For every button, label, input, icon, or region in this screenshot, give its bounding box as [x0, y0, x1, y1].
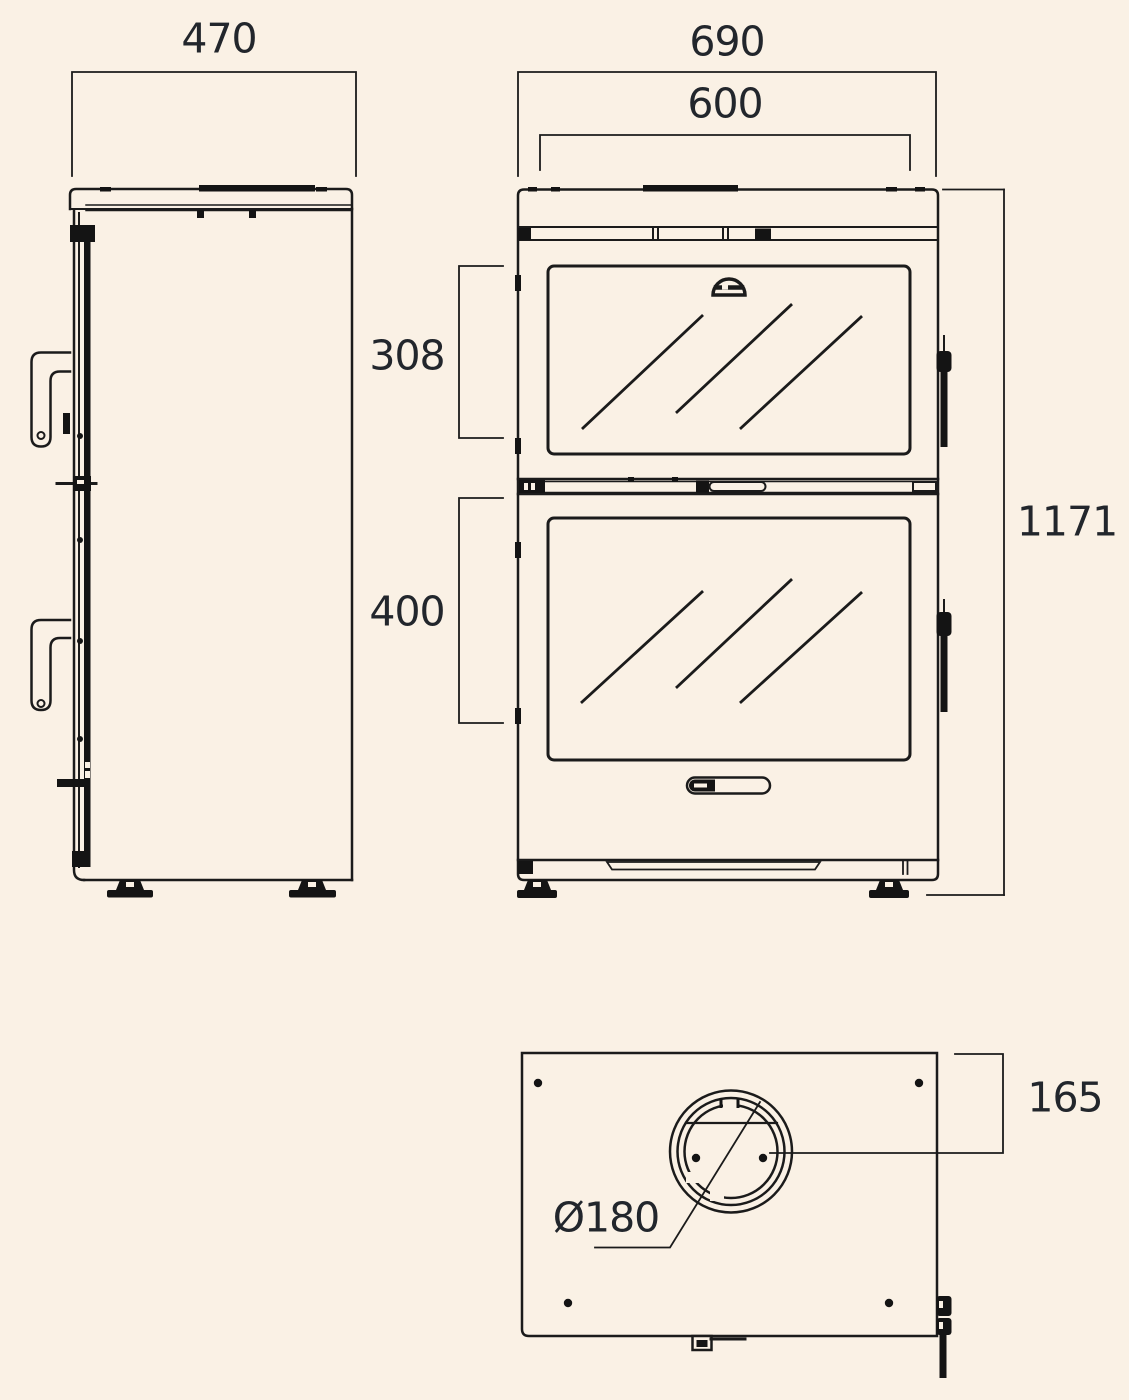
flue-bolt-dot — [759, 1154, 767, 1162]
adjustable-feet-front — [517, 880, 909, 898]
screw-dot — [534, 1079, 542, 1087]
top-view-latch — [693, 1336, 746, 1350]
hinge-pin — [77, 736, 83, 742]
dim-label-upper-glass-height: 308 — [369, 336, 444, 377]
dim-470-bracket — [72, 72, 356, 176]
dim-label-overall-width: 690 — [689, 22, 764, 63]
dim-label-flue-offset: 165 — [1027, 1078, 1102, 1119]
hinge-pin — [77, 433, 83, 439]
dim-600-bracket — [540, 135, 910, 170]
side-view-drawing — [32, 72, 357, 898]
top-hinge-block — [70, 225, 95, 242]
front-pull-handle — [687, 778, 770, 794]
flue-bolt-dot — [692, 1154, 700, 1162]
hinge-pin — [77, 638, 83, 644]
screw-dot — [885, 1299, 893, 1307]
dim-label-overall-height: 1171 — [1017, 502, 1117, 543]
dim-165-leader — [770, 1054, 1003, 1153]
hinge-pin — [77, 537, 83, 543]
screw-dot — [915, 1079, 923, 1087]
adjustable-feet-side — [107, 880, 336, 898]
stove-dimension-drawing — [0, 0, 1129, 1400]
lower-door-handle-profile — [32, 620, 71, 710]
glass-reflection-lines-upper — [583, 305, 861, 428]
thermometer-icon — [713, 279, 745, 295]
screw-dot — [564, 1299, 572, 1307]
drawing-canvas: 470 690 600 308 400 1171 165 Ø180 — [0, 0, 1129, 1400]
dim-label-flue-diameter: Ø180 — [553, 1198, 660, 1239]
flue-collar — [670, 1091, 792, 1213]
dim-400-bracket — [459, 498, 503, 723]
dim-308-bracket — [459, 266, 503, 438]
base-vent-slot — [607, 862, 820, 870]
top-view-door-handle — [937, 1296, 952, 1378]
glass-reflection-lines-lower — [582, 580, 861, 702]
dim-label-lower-glass-height: 400 — [369, 592, 444, 633]
dim-label-side-depth: 470 — [181, 19, 256, 60]
dim-label-glass-width: 600 — [687, 84, 762, 125]
front-view-drawing — [459, 72, 1004, 898]
